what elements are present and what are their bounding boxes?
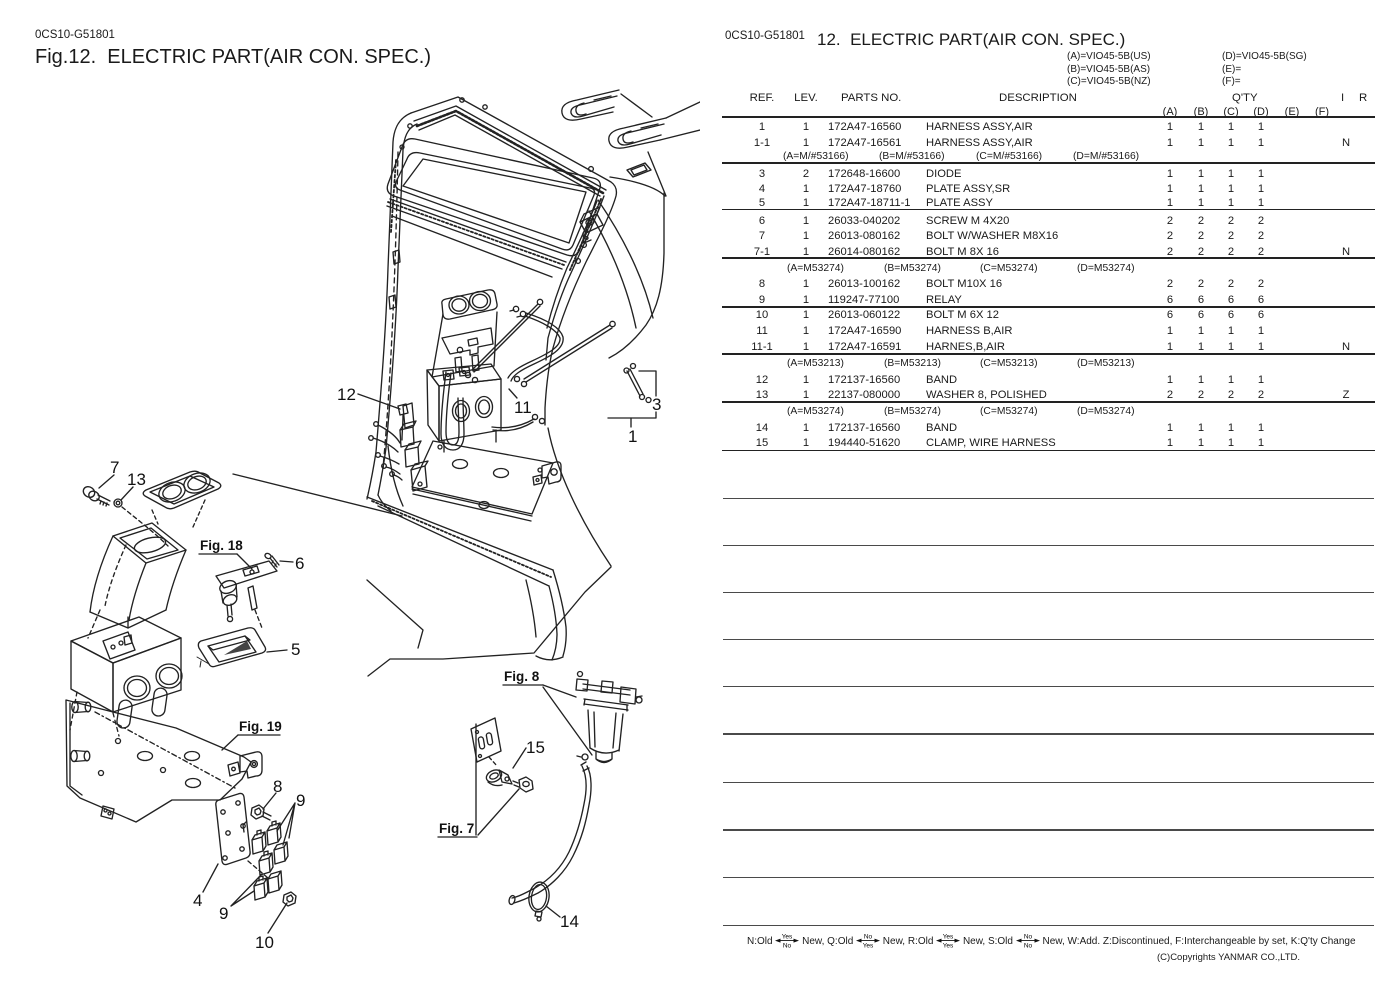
svg-text:Fig. 18: Fig. 18 xyxy=(200,538,243,553)
svg-text:Yes: Yes xyxy=(943,934,954,941)
svg-text:15: 15 xyxy=(526,738,545,757)
svg-text:Yes: Yes xyxy=(943,943,954,949)
svg-text:Fig. 7: Fig. 7 xyxy=(439,821,474,836)
svg-text:Fig. 19: Fig. 19 xyxy=(239,719,282,734)
svg-text:5: 5 xyxy=(291,640,300,659)
svg-text:12: 12 xyxy=(337,385,356,404)
svg-text:11: 11 xyxy=(514,398,532,417)
svg-text:No: No xyxy=(1024,943,1033,949)
svg-text:9: 9 xyxy=(296,791,305,810)
svg-text:8: 8 xyxy=(273,777,282,796)
svg-text:No: No xyxy=(864,934,873,941)
svg-text:4: 4 xyxy=(193,891,202,910)
svg-text:6: 6 xyxy=(295,554,304,573)
svg-text:No: No xyxy=(783,943,792,949)
svg-text:Yes: Yes xyxy=(782,934,793,941)
svg-text:Fig. 8: Fig. 8 xyxy=(504,669,540,684)
svg-text:No: No xyxy=(1024,934,1033,941)
svg-text:10: 10 xyxy=(255,933,274,952)
svg-text:3: 3 xyxy=(652,395,661,414)
svg-text:14: 14 xyxy=(560,912,579,931)
svg-text:1: 1 xyxy=(628,427,637,446)
svg-text:13: 13 xyxy=(127,470,146,489)
svg-text:9: 9 xyxy=(219,904,228,923)
svg-text:Yes: Yes xyxy=(863,943,874,949)
svg-text:7: 7 xyxy=(110,458,119,477)
